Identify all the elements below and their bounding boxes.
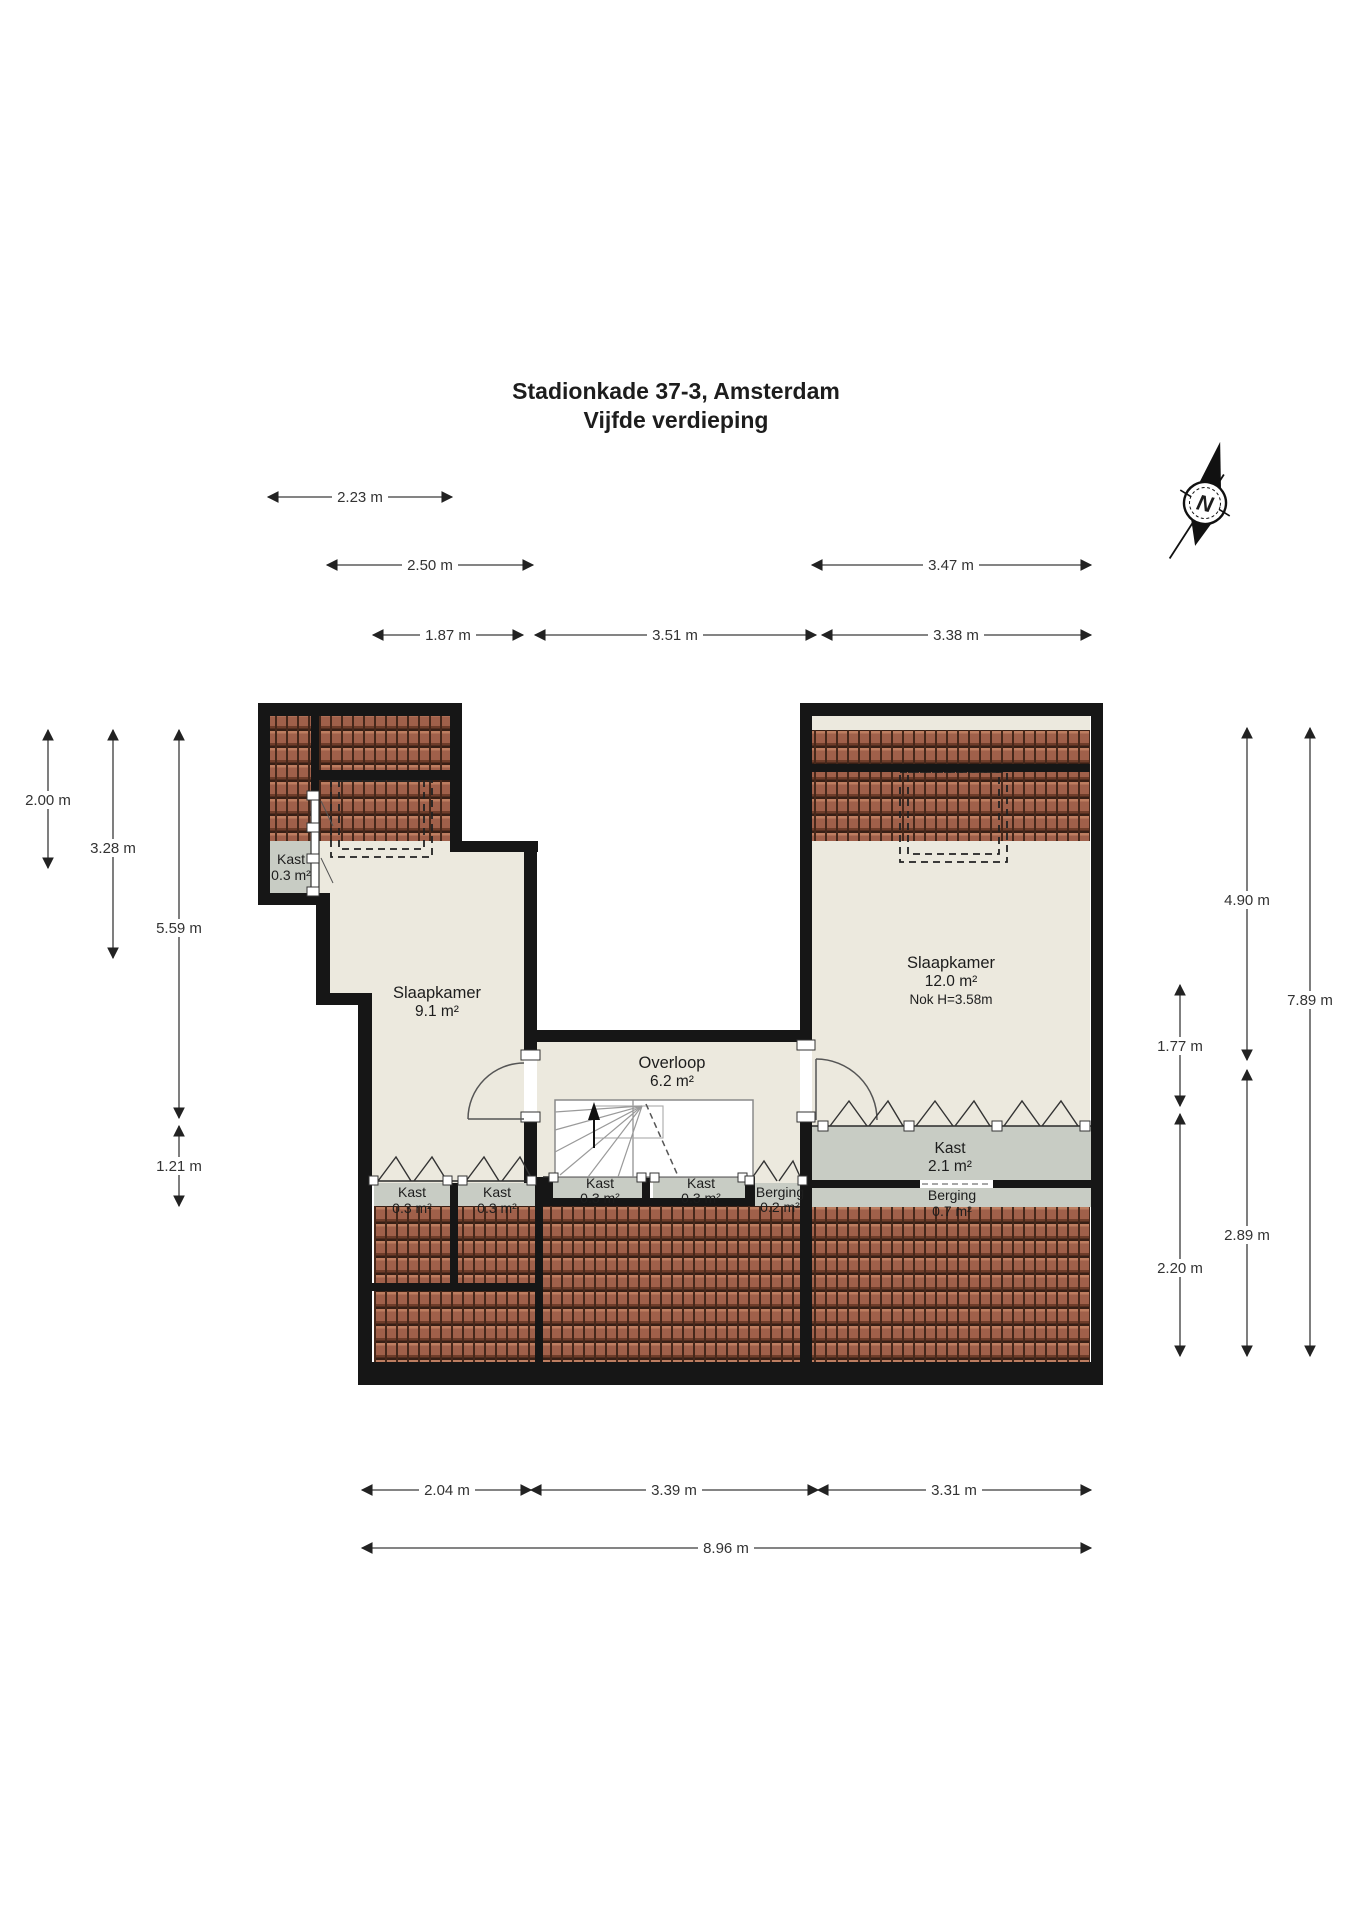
- label-kast-wide: Kast 2.1 m²: [928, 1140, 972, 1175]
- dim-8-96: 8.96 m: [703, 1540, 749, 1557]
- door-jamb: [797, 1040, 815, 1050]
- dim-1-77: 1.77 m: [1157, 1038, 1203, 1055]
- dim-2-50: 2.50 m: [407, 557, 453, 574]
- svg-text:0.3 m²: 0.3 m²: [477, 1200, 517, 1216]
- dim-1-21: 1.21 m: [156, 1158, 202, 1175]
- dim-3-47: 3.47 m: [928, 557, 974, 574]
- floorplan-page: { "title": { "line1": "Stadionkade 37-3,…: [0, 0, 1358, 1920]
- dim-2-89: 2.89 m: [1224, 1227, 1270, 1244]
- dim-1-87: 1.87 m: [425, 627, 471, 644]
- dim-3-39: 3.39 m: [651, 1482, 697, 1499]
- dim-5-59: 5.59 m: [156, 920, 202, 937]
- svg-text:12.0 m²: 12.0 m²: [925, 973, 978, 990]
- svg-text:Berging: Berging: [928, 1187, 976, 1203]
- svg-text:0.3 m²: 0.3 m²: [271, 867, 311, 883]
- svg-text:Kast: Kast: [586, 1175, 614, 1191]
- dim-2-04: 2.04 m: [424, 1482, 470, 1499]
- compass-icon: N: [1165, 436, 1246, 570]
- svg-text:Nok H=3.58m: Nok H=3.58m: [910, 992, 993, 1007]
- svg-text:Kast: Kast: [687, 1175, 715, 1191]
- dim-3-38: 3.38 m: [933, 627, 979, 644]
- svg-text:Slaapkamer: Slaapkamer: [393, 984, 482, 1002]
- dim-2-00: 2.00 m: [25, 792, 71, 809]
- dim-7-89: 7.89 m: [1287, 992, 1333, 1009]
- svg-text:0.2 m²: 0.2 m²: [760, 1199, 800, 1215]
- dim-3-28: 3.28 m: [90, 840, 136, 857]
- label-berging-right: Berging 0.7 m²: [928, 1187, 976, 1219]
- dimension-lines: 2.23 m 2.50 m 3.47 m 1.87 m 3.51 m 3.38 …: [20, 488, 1339, 1557]
- svg-text:2.1 m²: 2.1 m²: [928, 1158, 972, 1175]
- svg-text:6.2 m²: 6.2 m²: [650, 1073, 694, 1090]
- svg-text:Kast: Kast: [277, 851, 305, 867]
- page-title: Stadionkade 37-3, Amsterdam Vijfde verdi…: [512, 378, 840, 433]
- door-jamb: [797, 1112, 815, 1122]
- svg-text:0.7 m²: 0.7 m²: [932, 1203, 972, 1219]
- dim-3-31: 3.31 m: [931, 1482, 977, 1499]
- floor-plan-canvas: Stadionkade 37-3, Amsterdam Vijfde verdi…: [0, 0, 1358, 1920]
- svg-text:0.3 m²: 0.3 m²: [580, 1190, 620, 1206]
- title-line1: Stadionkade 37-3, Amsterdam: [512, 378, 840, 404]
- door-jamb: [521, 1050, 540, 1060]
- svg-text:0.3 m²: 0.3 m²: [392, 1200, 432, 1216]
- dim-2-23: 2.23 m: [337, 489, 383, 506]
- svg-text:Kast: Kast: [483, 1184, 511, 1200]
- label-berging-small: Berging 0.2 m²: [756, 1184, 804, 1215]
- staircase: [555, 1100, 753, 1177]
- door-jamb: [521, 1112, 540, 1122]
- svg-text:Overloop: Overloop: [639, 1054, 706, 1072]
- dim-4-90: 4.90 m: [1224, 892, 1270, 909]
- dim-3-51: 3.51 m: [652, 627, 698, 644]
- dim-2-20: 2.20 m: [1157, 1260, 1203, 1277]
- title-line2: Vijfde verdieping: [584, 407, 769, 433]
- svg-text:Kast: Kast: [934, 1140, 966, 1157]
- svg-text:0.3 m²: 0.3 m²: [681, 1190, 721, 1206]
- svg-text:9.1 m²: 9.1 m²: [415, 1003, 459, 1020]
- svg-text:Kast: Kast: [398, 1184, 426, 1200]
- svg-text:Berging: Berging: [756, 1184, 804, 1200]
- svg-text:Slaapkamer: Slaapkamer: [907, 954, 996, 972]
